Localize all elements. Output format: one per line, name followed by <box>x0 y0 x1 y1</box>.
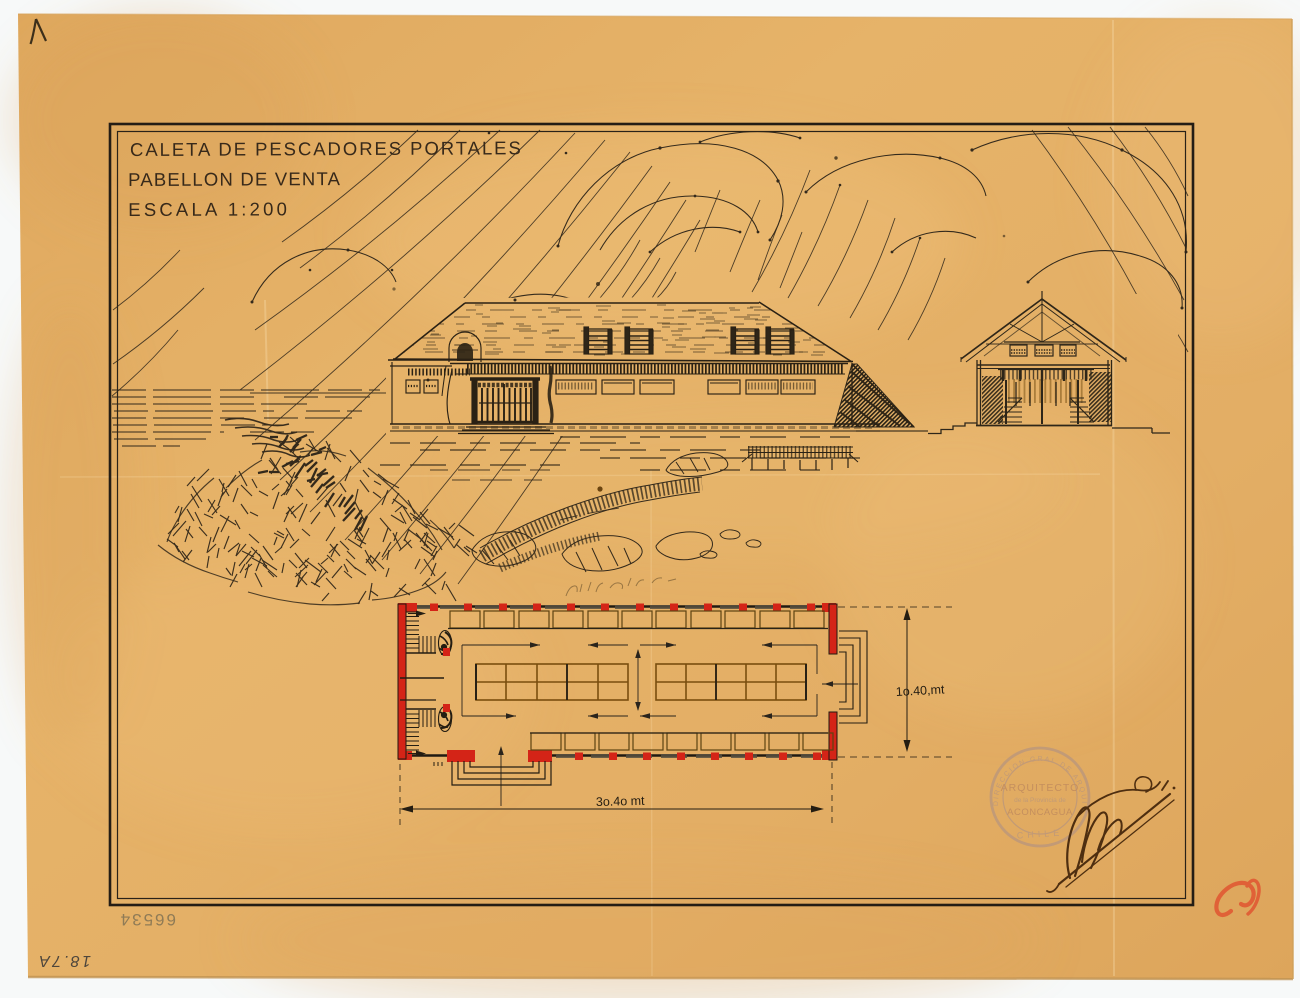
svg-text:1o.40,mt: 1o.40,mt <box>895 682 945 699</box>
svg-text:de la Provincia de: de la Provincia de <box>1014 797 1066 804</box>
svg-text:ACONCAGUA: ACONCAGUA <box>1007 807 1073 818</box>
svg-text:ESCALA 1:200: ESCALA 1:200 <box>128 198 290 220</box>
svg-text:CALETA DE PESCADORES PORTALES: CALETA DE PESCADORES PORTALES <box>130 137 523 160</box>
svg-text:3o.4o mt: 3o.4o mt <box>596 794 646 809</box>
svg-text:66534: 66534 <box>119 910 176 929</box>
svg-text:18.7A: 18.7A <box>37 952 91 969</box>
svg-text:PABELLON DE VENTA: PABELLON DE VENTA <box>128 168 341 190</box>
svg-text:ARQUITECTO: ARQUITECTO <box>1001 782 1080 794</box>
